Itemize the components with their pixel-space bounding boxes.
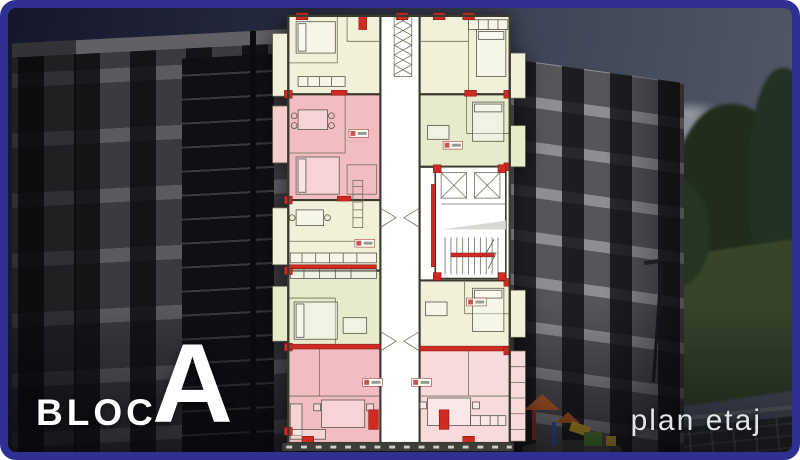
scene: BLOC A plan etaj (8, 8, 792, 452)
bottom-sill (282, 443, 513, 451)
poster-frame: BLOC A plan etaj (0, 0, 800, 460)
floor-plan (8, 8, 792, 452)
stair-rail (451, 253, 494, 257)
stair-elevator-core (431, 167, 505, 279)
bloc-label: BLOC (36, 392, 157, 434)
plan-caption: plan etaj (631, 404, 762, 438)
block-letter: A (152, 338, 233, 430)
